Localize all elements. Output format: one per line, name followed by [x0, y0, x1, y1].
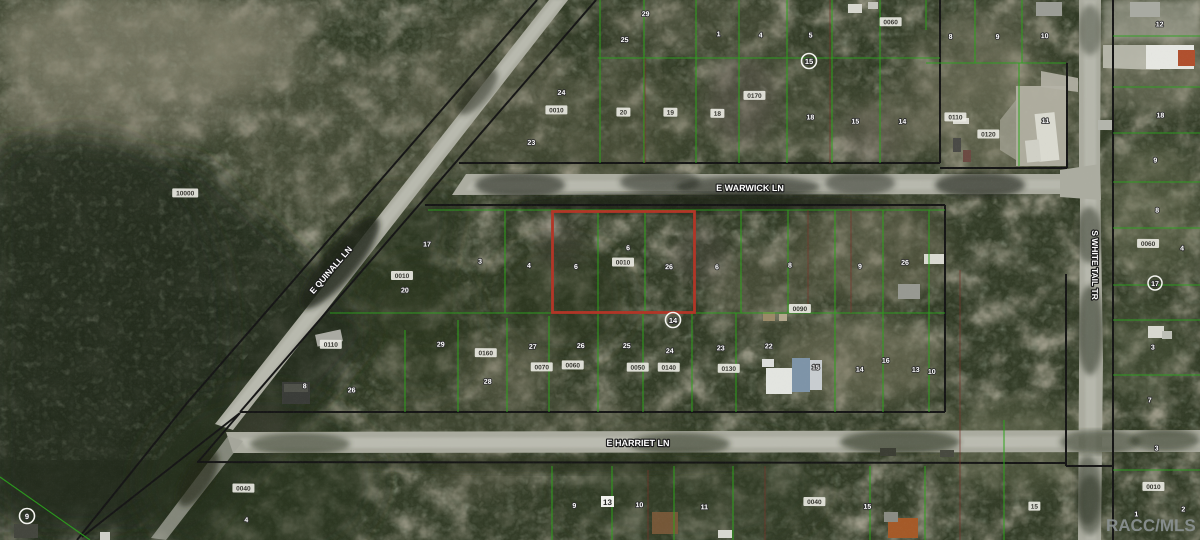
svg-text:RACC/MLS: RACC/MLS: [1106, 516, 1196, 535]
